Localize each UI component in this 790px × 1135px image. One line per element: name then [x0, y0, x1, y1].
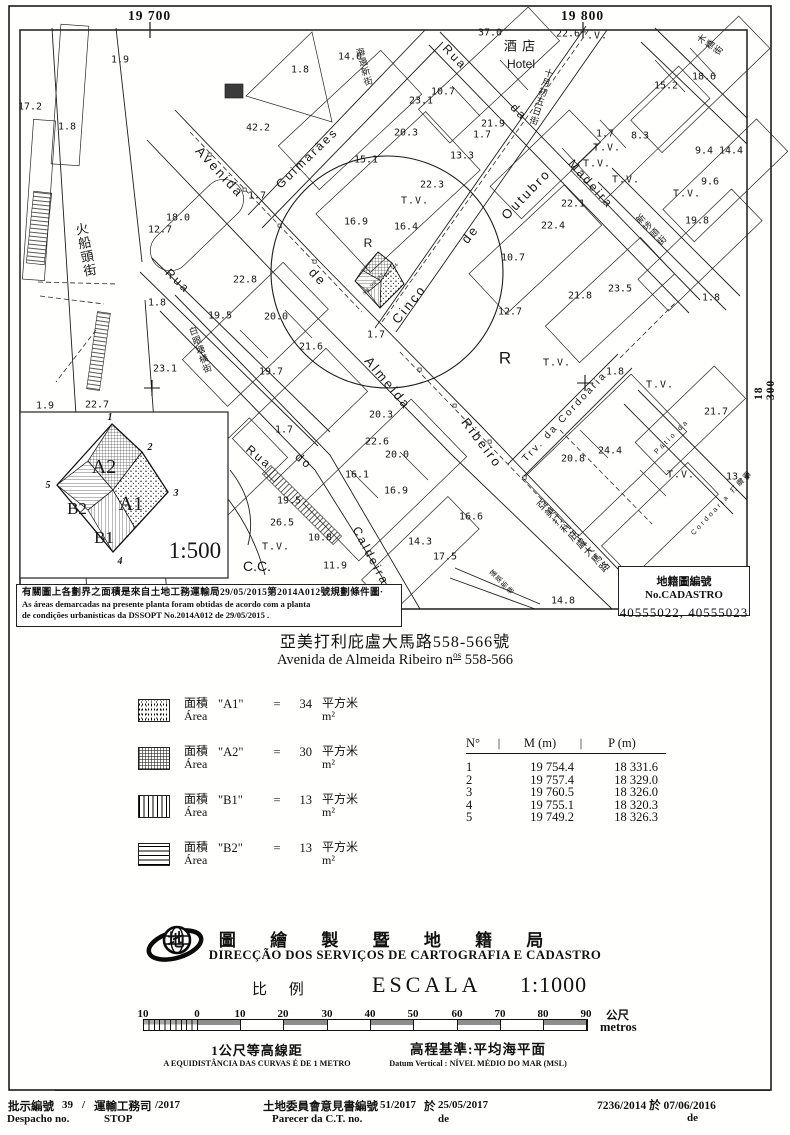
map-label: 1.8: [148, 298, 166, 309]
map-label: T.V.: [593, 143, 621, 154]
scalebar-segment: [458, 1020, 501, 1030]
map-label: T.V.: [673, 189, 701, 200]
despacho-label-cn: 批示編號: [8, 1098, 54, 1114]
map-label: 新埗頭街: [633, 211, 669, 247]
cadastro-number-box: 地籍圖編號 No.CADASTRO 40555022, 40555023: [618, 566, 750, 616]
area-unit: 平方米m²: [322, 793, 358, 819]
contour-note-chinese: 1公尺等高線距: [211, 1040, 303, 1059]
area-word: 面積Área: [184, 697, 208, 723]
map-label: 26.5: [270, 518, 294, 529]
map-label: Almeida: [362, 353, 415, 412]
map-label: 22.7: [85, 400, 109, 411]
map-label: do: [292, 450, 315, 473]
inset-vertex-5: 5: [46, 480, 51, 491]
despacho-dept-cn: 運輸工務司: [94, 1098, 152, 1114]
agency-name-portuguese: DIRECÇÃO DOS SERVIÇOS DE CARTOGRAFIA E C…: [209, 948, 601, 963]
table-cell: 1: [466, 761, 494, 774]
map-label: 23.5: [608, 284, 632, 295]
map-label: 1.7: [473, 130, 491, 141]
map-label: 16.1: [345, 470, 369, 481]
scalebar-segment: [328, 1020, 371, 1030]
map-label: T.V.: [401, 196, 429, 207]
address-title-chinese: 亞美打利庇盧大馬路558-566號: [0, 628, 790, 652]
map-label: 12.7: [148, 225, 172, 236]
map-label: de: [458, 222, 482, 247]
coordinate-table: N° | M (m) | P (m) 119 754.418 331.6219 …: [466, 736, 666, 824]
map-label: 22.3: [420, 180, 444, 191]
area-unit: 平方米m²: [322, 697, 358, 723]
parecer-label-cn: 土地委員會意見書編號: [263, 1098, 378, 1114]
map-label: 15.2: [654, 81, 678, 92]
col-p-coordinate: P (m): [586, 736, 658, 751]
map-label: Rua: [440, 42, 471, 73]
map-label: 19.8: [685, 216, 709, 227]
scale-label-chinese: 比 例: [252, 978, 313, 999]
scalebar-segment: [198, 1020, 241, 1030]
map-label: da: [508, 101, 531, 124]
address-title-portuguese: Avenida de Almeida Ribeiro nos 558-566: [0, 650, 790, 669]
inset-legend: A2 A1 B2 B1 1 2 3 4 5 1:500: [20, 412, 228, 578]
map-label: 1.8: [702, 293, 720, 304]
map-label: T.V.: [580, 31, 608, 42]
table-cell: 19 760.5: [494, 786, 574, 799]
map-label: 21.6: [299, 342, 323, 353]
scalebar-segment: [284, 1020, 328, 1030]
map-label: T.V.: [646, 380, 674, 391]
map-label: 18.0: [166, 213, 190, 224]
area-word: 面積Área: [184, 745, 208, 771]
map-label: 1.7: [275, 425, 293, 436]
map-label: 13.3: [450, 151, 474, 162]
map-label: 1.8: [606, 367, 624, 378]
grid-label-18300: 18 300: [753, 363, 777, 400]
table-row: 119 754.418 331.6: [466, 761, 666, 774]
map-label: 20.0: [264, 312, 288, 323]
map-label: 13.4: [726, 472, 750, 483]
map-label: 14.8: [551, 596, 575, 607]
inset-area-b1: B1: [94, 528, 114, 547]
area-unit: 平方米m²: [322, 745, 358, 771]
inset-area-b2: B2: [67, 499, 87, 518]
map-label: 11.9: [323, 561, 347, 572]
map-label: 16.9: [384, 486, 408, 497]
inset-vertex-1: 1: [108, 412, 113, 423]
map-label: 10.7: [431, 87, 455, 98]
map-label: 23.1: [409, 96, 433, 107]
table-row: 319 760.518 326.0: [466, 786, 666, 799]
scalebar-segment: [371, 1020, 414, 1030]
map-label: 16.9: [344, 217, 368, 228]
map-label: 14.0: [338, 52, 362, 63]
area-row-b2: 面積Área"B2"=13平方米m²: [138, 841, 358, 881]
address-pt-numbers: 558-566: [461, 652, 513, 668]
despacho-slash: /: [82, 1099, 85, 1111]
map-label: 22.6: [365, 437, 389, 448]
map-label: 24.4: [598, 446, 622, 457]
area-equation: "B2"=13: [218, 841, 322, 856]
column-separator: |: [494, 736, 504, 751]
table-cell: 18 326.0: [574, 786, 658, 799]
inset-area-a1: A1: [119, 493, 143, 515]
dssopt-note-box: 有關圖上各劃界之面積是來自土地工務運輸局29/05/2015第2014A012號…: [16, 584, 402, 627]
map-label: 19.5: [277, 496, 301, 507]
map-label: 1.9: [36, 401, 54, 412]
map-label: T.V.: [612, 175, 640, 186]
note-portuguese-1: As áreas demarcadas na presente planta f…: [22, 599, 396, 610]
map-label: 亞美打利庇盧大馬路: [533, 497, 611, 575]
map-label: 10.8: [308, 533, 332, 544]
map-label: T.V.: [262, 542, 290, 553]
map-label: Ribeiro: [458, 415, 505, 471]
map-label: 14.3: [408, 537, 432, 548]
reference-de: de: [687, 1112, 698, 1124]
table-cell: 5: [466, 811, 494, 824]
map-label: 火船頭街: [72, 221, 97, 279]
scalebar-segment: [414, 1020, 458, 1030]
scalebar-segment: [544, 1020, 587, 1030]
map-label: R: [499, 349, 511, 368]
scalebar-unit-portuguese: metros: [600, 1020, 637, 1035]
table-cell: 18 331.6: [574, 761, 658, 774]
map-label: 14.4: [719, 146, 743, 157]
map-label: 10.7: [501, 253, 525, 264]
despacho-year: /2017: [155, 1099, 180, 1111]
map-label: C.C.: [243, 558, 271, 574]
map-label: T.V.: [583, 159, 611, 170]
datum-note-chinese: 高程基準:平均海平面: [410, 1038, 546, 1058]
area-unit: 平方米m²: [322, 841, 358, 867]
scalebar: [143, 1019, 588, 1031]
note-chinese: 有關圖上各劃界之面積是來自土地工務運輸局29/05/2015第2014A012號…: [22, 588, 396, 599]
map-label: 21.9: [481, 119, 505, 130]
map-label: 17.2: [18, 102, 42, 113]
map-label: 20.3: [394, 128, 418, 139]
area-equation: "A1"=34: [218, 697, 322, 712]
map-label: 22.4: [541, 221, 565, 232]
map-label: 12.7: [498, 307, 522, 318]
map-label: 十月初五日街: [527, 66, 554, 127]
map-label: 1.7: [248, 191, 266, 202]
map-label: Trv. da Cordoaria: [520, 370, 609, 465]
coordinate-table-body: 119 754.418 331.6219 757.418 329.0319 76…: [466, 761, 666, 824]
map-label: Avenida: [193, 143, 248, 200]
map-label: 16.6: [459, 512, 483, 523]
map-label: 9.6: [701, 177, 719, 188]
col-point-number: N°: [466, 736, 494, 751]
cadastro-label: 地籍圖編號 No.CADASTRO: [619, 573, 749, 601]
map-label: 蓬萊新巷: [487, 567, 516, 596]
map-label: 20.3: [369, 410, 393, 421]
col-m-coordinate: M (m): [504, 736, 576, 751]
a2-pattern-swatch: [138, 747, 170, 770]
despacho-dept-pt: STOP: [104, 1113, 133, 1125]
parecer-label-pt: Parecer da C.T. no.: [272, 1113, 362, 1125]
note-portuguese-2: de condições urbanísticas da DSSOPT No.2…: [22, 610, 396, 621]
map-label: R: [364, 236, 373, 250]
b1-pattern-swatch: [138, 795, 170, 818]
map-label: 木橋街: [694, 32, 725, 58]
scalebar-segment: [241, 1020, 284, 1030]
inset-vertex-3: 3: [173, 488, 179, 499]
area-equation: "B1"=13: [218, 793, 322, 808]
cadastro-numbers: 40555022, 40555023: [619, 605, 749, 621]
map-label: 18.6: [692, 72, 716, 83]
area-row-a2: 面積Área"A2"=30平方米m²: [138, 745, 358, 785]
map-label: 42.2: [246, 123, 270, 134]
map-label: 23.1: [153, 364, 177, 375]
grid-cross-marks: [144, 375, 593, 396]
datum-note-portuguese: Datum Vertical : NÍVEL MÉDIO DO MAR (MSL…: [389, 1059, 567, 1068]
map-label: T.V.: [543, 358, 571, 369]
table-cell: 19 754.4: [494, 761, 574, 774]
inset-scale: 1:500: [169, 538, 221, 563]
column-separator: |: [576, 736, 586, 751]
scale-value: 1:1000: [520, 972, 587, 998]
scalebar-segment: [501, 1020, 544, 1030]
map-label: 22.1: [561, 199, 585, 210]
area-word: 面積Área: [184, 793, 208, 819]
scale-label-portuguese: ESCALA: [372, 972, 482, 998]
map-label: 酒 店: [504, 39, 536, 54]
map-label: Hotel: [507, 57, 535, 71]
grid-label-19700: 19 700: [128, 8, 171, 24]
cadastral-plan-sheet: A2 A1 B2 B1 1 2 3 4 5 1:500 AvenidadeAlm…: [0, 0, 790, 1135]
parecer-date: 25/05/2017: [438, 1099, 488, 1111]
despacho-number: 39: [62, 1099, 73, 1111]
grid-label-19800: 19 800: [561, 8, 604, 24]
address-pt-superscript: os: [453, 650, 461, 660]
map-label: 9.4: [695, 146, 713, 157]
map-label: 19.5: [208, 311, 232, 322]
map-label: 20.0: [385, 450, 409, 461]
scalebar-segment: [144, 1020, 198, 1030]
table-row: 519 749.218 326.3: [466, 811, 666, 824]
map-label: 37.0: [478, 28, 502, 39]
map-label: 20.8: [561, 454, 585, 465]
map-label: Rua: [163, 266, 194, 297]
table-cell: 3: [466, 786, 494, 799]
map-label: 1.8: [58, 122, 76, 133]
footer-divider: [55, 1090, 770, 1091]
despacho-label-pt: Despacho no.: [7, 1113, 69, 1125]
map-label: 21.8: [568, 291, 592, 302]
address-pt-prefix: Avenida de Almeida Ribeiro n: [277, 652, 453, 668]
inset-vertex-4: 4: [117, 556, 123, 567]
a1-pattern-swatch: [138, 699, 170, 722]
inset-vertex-2: 2: [147, 442, 153, 453]
map-label: 1.7: [596, 129, 614, 140]
map-label: 8.3: [631, 131, 649, 142]
contour-note-portuguese: A EQUIDISTÂNCIA DAS CURVAS É DE 1 METRO: [163, 1059, 350, 1068]
reference-number: 7236/2014 於 07/06/2016: [597, 1097, 716, 1113]
map-label: 22.8: [233, 275, 257, 286]
parecer-at-cn: 於: [424, 1098, 436, 1114]
parecer-number: 51/2017: [380, 1099, 416, 1111]
map-label: 16.4: [394, 222, 418, 233]
area-row-b1: 面積Área"B1"=13平方米m²: [138, 793, 358, 833]
map-label: 22.6: [556, 29, 580, 40]
inset-area-a2: A2: [92, 456, 116, 478]
table-cell: 19 749.2: [494, 811, 574, 824]
map-label: 1.8: [291, 65, 309, 76]
map-label: 17.5: [433, 552, 457, 563]
map-label: 1.9: [111, 55, 129, 66]
coordinate-table-header: N° | M (m) | P (m): [466, 736, 666, 754]
map-label: 21.7: [704, 407, 728, 418]
map-label: T.V.: [667, 470, 695, 481]
map-label: 19.7: [259, 367, 283, 378]
area-equation: "A2"=30: [218, 745, 322, 760]
area-word: 面積Área: [184, 841, 208, 867]
map-label: 1.7: [367, 330, 385, 341]
area-row-a1: 面積Área"A1"=34平方米m²: [138, 697, 358, 737]
parecer-de: de: [438, 1113, 449, 1125]
b2-pattern-swatch: [138, 843, 170, 866]
map-label: 15.1: [354, 155, 378, 166]
table-cell: 18 326.3: [574, 811, 658, 824]
